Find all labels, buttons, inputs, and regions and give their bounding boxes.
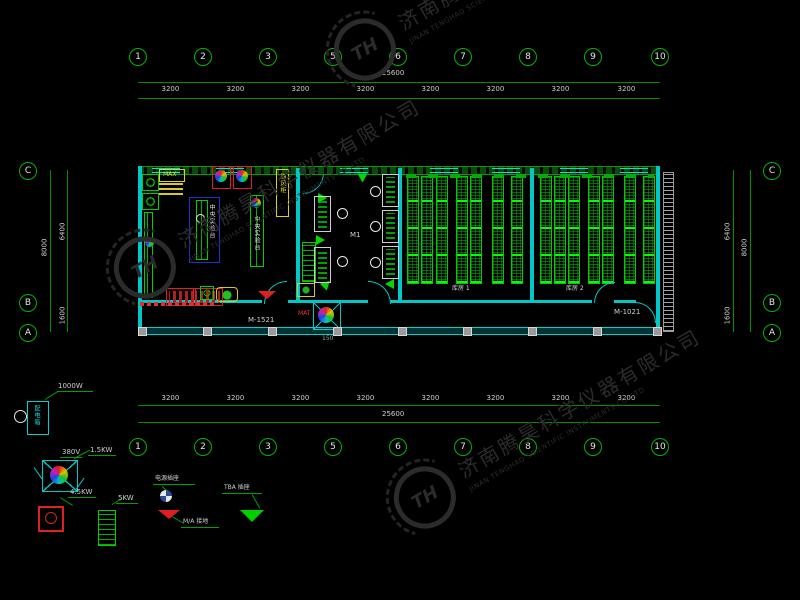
lamp-icon [370,186,381,197]
shelf-rack [624,176,636,284]
grid-bubble-right: C [763,162,781,180]
column-marker [138,327,147,336]
window [560,168,588,173]
leader-line [222,493,262,494]
central-bench [196,200,208,260]
dimension-text: 3200 [487,395,505,402]
exterior-wall-left [138,166,142,333]
grid-bubble-top: 10 [651,48,669,66]
dimension-text: 1600 [59,307,66,325]
grid-line [37,302,138,303]
legend-socketpower-label: 4.5KW [70,489,92,496]
legend-ladderpower-label: 5KW [118,495,134,502]
equipment-icon [142,174,159,191]
door-arc [303,173,324,194]
window [340,168,368,173]
grid-line [268,66,269,118]
equipment-icon [200,286,214,300]
shelf-rack [540,176,552,284]
grid-bubble-top: 8 [519,48,537,66]
lamp-icon [370,257,381,268]
equipment-tag [382,210,399,243]
leader-line [60,457,82,458]
lamp-icon [196,214,205,223]
shelf-rack [588,176,600,284]
watermark-company-en: JINAN TENGHAO SCIENTIFIC INSTRUMENTS CO.… [468,348,711,493]
shelf-rack [492,176,504,284]
exterior-ramp-hatch [663,172,674,332]
grid-bubble-left: B [19,294,37,312]
dimension-line [50,170,51,332]
mat-label: MAT [298,311,310,317]
shelf-rack [456,176,468,284]
dimension-text: 3200 [292,86,310,93]
legend-socket-box [38,506,64,532]
legend-outlet-icon [160,490,172,502]
legend-tba-label: TBA 插座 [224,485,250,491]
logo-text: TH [408,482,442,514]
grid-bubble-top: 6 [389,48,407,66]
window [492,168,520,173]
dimension-text: 3200 [552,86,570,93]
dimension-text: 3200 [162,86,180,93]
room-label: 库房 1 [452,286,470,292]
grid-bubble-top: 2 [194,48,212,66]
leader-line [60,497,73,506]
grid-bubble-top: 5 [324,48,342,66]
dimension-line [733,170,734,332]
grid-bubble-bottom: 2 [194,438,212,456]
fan-icon [236,170,248,182]
room-tag: M1 [350,232,361,239]
side-bench [144,212,153,298]
legend-outlet-label: 电源插座 [155,476,179,482]
equipment-tag [382,174,399,207]
grid-bubble-bottom: 1 [129,438,147,456]
total-dimension-text: 25600 [382,411,404,418]
grid-bubble-bottom: 8 [519,438,537,456]
dimension-text: 3200 [162,395,180,402]
ground-symbol-icon [258,291,276,299]
equipment-icon [142,193,159,210]
max-box: MAX [159,169,185,182]
grid-bubble-right: B [763,294,781,312]
shelf-rack [407,176,419,284]
shelf-rack [568,176,580,284]
grid-line [660,332,762,333]
legend-power-label: 1000W [58,383,83,390]
bench-label: 中央实验台 [208,204,214,239]
speaker-icon [385,279,394,289]
grid-line [660,353,661,438]
fume-hood-label: 通风柜 [279,173,285,194]
legend-circle-icon [14,410,27,423]
bench-label: 中央实验台 [253,216,259,251]
dimension-text: 3200 [292,395,310,402]
grid-bubble-right: A [763,324,781,342]
dimension-text: 3200 [618,86,636,93]
grid-line [593,66,594,118]
shelf-rack [643,176,655,284]
dimension-line [750,170,751,332]
grid-line [268,353,269,438]
grid-line [203,353,204,438]
grid-line [37,170,138,171]
grid-line [528,353,529,438]
equipment-tag [382,246,399,279]
dimension-text: 3200 [422,86,440,93]
lamp-icon [337,256,348,267]
dimension-text: 3200 [487,86,505,93]
lamp-icon [337,208,348,219]
dimension-text: 6400 [59,223,66,241]
room-label: 库房 2 [566,286,584,292]
grid-bubble-bottom: 7 [454,438,472,456]
speaker-icon [316,235,325,245]
column-marker [333,327,342,336]
column-marker [528,327,537,336]
partition-wall [530,168,534,303]
window [430,168,458,173]
fan-icon [251,198,261,208]
leader-line [252,494,261,508]
grid-line [37,332,138,333]
equipment-note-text [140,302,214,306]
legend-fanpower-label: 1.5KW [90,447,112,454]
shelf-rack [436,176,448,284]
fan-icon [145,238,154,247]
door-tag: M-1521 [248,317,274,324]
grid-bubble-bottom: 5 [324,438,342,456]
dimension-text: 3200 [422,395,440,402]
equipment-tag [314,247,331,283]
panel-label: 配电箱 [33,405,39,426]
dimension-line [138,405,660,406]
total-dimension-text: 25600 [382,70,404,77]
grid-bubble-bottom: 6 [389,438,407,456]
dimension-line [138,422,660,423]
dimension-line [138,82,660,83]
grid-line [528,66,529,118]
equipment-icon [297,283,315,297]
speaker-icon [358,174,368,183]
dimension-text: 3200 [227,395,245,402]
column-marker [268,327,277,336]
leader-line [68,497,96,498]
leader-line [45,391,58,400]
grid-line [203,66,204,118]
grid-line [333,66,334,118]
column-marker [653,327,662,336]
exterior-wall-right [656,166,660,333]
column-marker [593,327,602,336]
heater-bars [159,183,183,195]
watermark-company-cn: 济南腾昊科学仪器有限公司 [452,321,706,484]
grid-bubble-top: 9 [584,48,602,66]
dimension-text: 3200 [357,395,375,402]
vent-strip [406,174,528,178]
grid-line [463,353,464,438]
dimension-text: 6400 [724,223,731,241]
leader-line [88,455,116,456]
column-marker [398,327,407,336]
door-arc [594,282,615,303]
grid-bubble-left: A [19,324,37,342]
legend-ground-label: M/A 接地 [183,519,208,525]
chair-icon [216,287,238,302]
leader-line [153,484,195,485]
shelf-rack [602,176,614,284]
grid-bubble-bottom: 3 [259,438,277,456]
watermark-company-en: JINAN TENGHAO SCIENTIFIC INSTRUMENTS CO.… [408,0,651,45]
column-marker [203,327,212,336]
door-tag: M-1021 [614,309,640,316]
grid-line [660,302,762,303]
dimension-text: 1600 [724,307,731,325]
grid-line [398,353,399,438]
company-logo-icon: TH [383,455,468,540]
corridor-wall [390,300,592,303]
grid-bubble-top: 3 [259,48,277,66]
grid-line [333,353,334,438]
leader-line [181,527,219,528]
fan-icon [50,466,68,484]
shelf-rack [511,176,523,284]
grid-line [463,66,464,118]
dimension-line [67,170,68,332]
watermark: TH 济南腾昊科学仪器有限公司 JINAN TENGHAO SCIENTIFIC… [383,311,717,540]
grid-line [660,66,661,168]
grid-bubble-top: 1 [129,48,147,66]
fan-icon [318,307,334,323]
equipment-tag [314,196,331,232]
legend-tba-icon [240,510,264,522]
shelf-rack [554,176,566,284]
grid-bubble-left: C [19,162,37,180]
grid-bubble-bottom: 10 [651,438,669,456]
vent-strip [538,174,654,178]
dimension-text: 3200 [618,395,636,402]
watermark-company-cn: 济南腾昊科学仪器有限公司 [392,0,646,36]
grid-line [593,353,594,438]
fan-icon [215,170,227,182]
grid-bubble-top: 7 [454,48,472,66]
dimension-text: 3200 [357,86,375,93]
dimension-text: 8000 [741,239,748,257]
cad-drawing-canvas: TH 济南腾昊科学仪器有限公司 JINAN TENGHAO SCIENTIFIC… [0,0,800,600]
lamp-icon [370,221,381,232]
fume-hood: 通风柜 [276,169,289,217]
grid-line [660,170,762,171]
shelf-rack [421,176,433,284]
watermark: TH 济南腾昊科学仪器有限公司 JINAN TENGHAO SCIENTIFIC… [323,0,657,92]
corridor-wall [614,300,636,303]
dimension-text: 8000 [41,239,48,257]
leader-line [57,391,93,392]
dimension-text: 3200 [552,395,570,402]
small-dimension: 150 [322,336,333,342]
leader-line [116,503,138,504]
grid-line [138,353,139,438]
logo-text: TH [348,34,382,66]
grid-bubble-bottom: 9 [584,438,602,456]
dimension-text: 3200 [227,86,245,93]
legend-panel-box: 配电箱 [27,401,49,435]
legend-ladder-icon [98,510,116,546]
max-label: MAX [163,172,176,178]
shelf-rack [470,176,482,284]
column-marker [463,327,472,336]
window [620,168,648,173]
dimension-line [138,98,660,99]
